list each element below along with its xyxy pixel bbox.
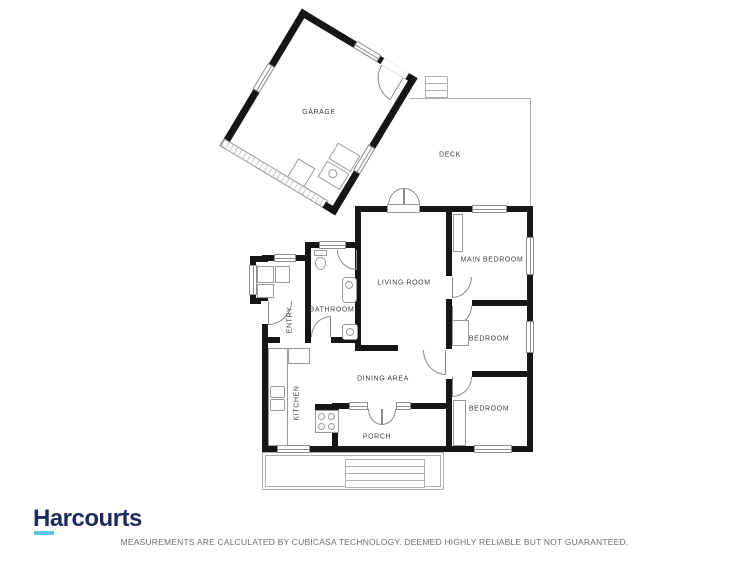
room-label-entry: ENTRY <box>287 307 294 334</box>
deck-steps <box>425 76 448 99</box>
harcourts-logo-underline <box>34 531 54 535</box>
porch-steps <box>345 459 425 488</box>
closet <box>453 214 463 252</box>
room-label-bedroom-2: BEDROOM <box>469 406 509 413</box>
window <box>474 445 512 453</box>
room-label-dining-area: DINING AREA <box>357 376 409 383</box>
garage-structure: GARAGE <box>219 9 417 216</box>
window <box>396 402 411 410</box>
door-arc <box>311 316 331 337</box>
deck-outline <box>410 98 531 209</box>
bathtub-drain <box>345 281 353 289</box>
room-label-living-room: LIVING ROOM <box>377 280 430 287</box>
wall-segment <box>262 337 280 343</box>
door-sill <box>387 204 420 213</box>
french-door-arc <box>368 409 382 425</box>
disclaimer-text: MEASUREMENTS ARE CALCULATED BY CUBICASA … <box>0 537 749 547</box>
window <box>253 63 275 93</box>
room-label-deck: DECK <box>439 152 461 159</box>
french-door-arc <box>382 409 396 425</box>
door-arc <box>452 277 472 298</box>
entry-cabinet <box>257 284 274 298</box>
window <box>526 321 534 353</box>
window <box>353 41 381 62</box>
window <box>249 265 257 295</box>
entry-cabinet <box>275 266 290 283</box>
kitchen-counter <box>288 348 310 364</box>
french-door-arc <box>388 188 404 205</box>
window <box>349 402 368 410</box>
washbasin-bowl <box>346 328 354 336</box>
room-label-porch: PORCH <box>363 434 391 441</box>
room-label-main-bedroom: MAIN BEDROOM <box>461 257 524 264</box>
room-label-kitchen: KITCHEN <box>294 386 301 421</box>
floorplan-canvas: DECK <box>0 0 749 562</box>
kitchen-sink <box>270 386 285 398</box>
window <box>274 254 296 262</box>
entry-cabinet <box>257 266 274 283</box>
closet <box>452 320 469 346</box>
room-label-garage: GARAGE <box>302 109 336 116</box>
toilet <box>314 250 327 256</box>
window <box>277 445 310 453</box>
door-opening <box>311 337 331 343</box>
stove-burner <box>318 413 325 420</box>
door-arc <box>423 350 446 375</box>
door-arc <box>452 377 472 397</box>
closet <box>453 400 466 446</box>
stove-burner <box>328 413 335 420</box>
stove-burner <box>328 423 335 430</box>
window <box>526 237 534 275</box>
harcourts-logo: Harcourts <box>33 505 142 533</box>
toilet <box>315 257 326 270</box>
window <box>472 205 507 213</box>
window <box>319 241 346 249</box>
kitchen-sink <box>270 399 285 411</box>
shower <box>337 250 357 270</box>
room-label-bedroom-1: BEDROOM <box>469 336 509 343</box>
room-label-bathroom: BATHROOM <box>310 307 355 314</box>
stove-burner <box>318 423 325 430</box>
wall-segment <box>358 345 398 351</box>
